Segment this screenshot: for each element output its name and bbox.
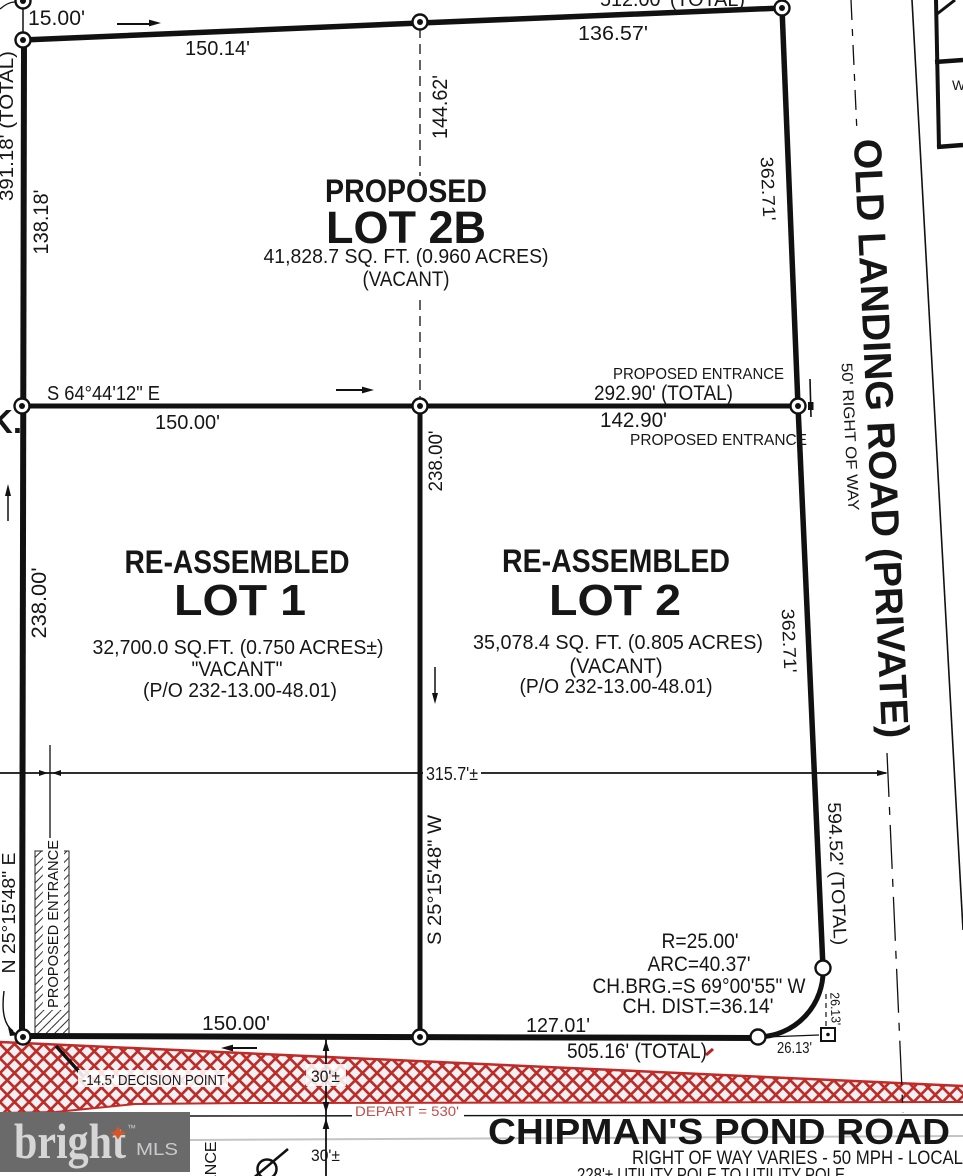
svg-text:127.01': 127.01': [526, 1015, 590, 1037]
svg-text:PROPOSED ENTRANCE: PROPOSED ENTRANCE: [45, 840, 62, 1008]
svg-text:238.00': 238.00': [27, 568, 51, 639]
svg-text:R=25.00': R=25.00': [662, 930, 739, 953]
svg-text:S 64°44'12" E: S 64°44'12" E: [47, 383, 160, 405]
svg-text:144.62': 144.62': [429, 75, 452, 139]
svg-text:bright: bright: [14, 1113, 126, 1169]
svg-text:30'±: 30'±: [311, 1146, 340, 1165]
svg-text:LOT 2: LOT 2: [549, 576, 681, 625]
svg-text:138.18': 138.18': [30, 190, 53, 255]
svg-text:PROPOSED ENTRANCE: PROPOSED ENTRANCE: [613, 366, 784, 383]
svg-text:136.57': 136.57': [578, 23, 648, 45]
svg-text:PROPOSED ENTRANCE: PROPOSED ENTRANCE: [203, 1141, 220, 1176]
svg-text:CHIPMAN'S POND ROAD: CHIPMAN'S POND ROAD: [488, 1111, 950, 1152]
svg-text:W: W: [952, 77, 963, 93]
svg-text:292.90' (TOTAL): 292.90' (TOTAL): [594, 382, 733, 405]
svg-text:150.00': 150.00': [202, 1013, 270, 1035]
svg-text:MLS: MLS: [136, 1139, 178, 1159]
svg-text:362.71': 362.71': [778, 608, 801, 673]
svg-text:512.00' (TOTAL): 512.00' (TOTAL): [600, 0, 745, 11]
svg-text:K.: K.: [0, 403, 22, 440]
svg-text:(VACANT): (VACANT): [570, 655, 663, 678]
svg-text:S 25°15'48" W: S 25°15'48" W: [425, 815, 446, 945]
svg-text:(P/O 232-13.00-48.01): (P/O 232-13.00-48.01): [520, 676, 713, 698]
svg-text:ARC=40.37': ARC=40.37': [648, 953, 751, 976]
svg-text:CH. DIST.=36.14': CH. DIST.=36.14': [623, 995, 774, 1018]
svg-text:228'± UTILITY POLE TO UTILITY: 228'± UTILITY POLE TO UTILITY POLE: [577, 1165, 845, 1176]
svg-text:30'±: 30'±: [311, 1067, 340, 1086]
svg-text:391.18' (TOTAL): 391.18' (TOTAL): [0, 51, 18, 201]
svg-text:-14.5' DECISION POINT: -14.5' DECISION POINT: [82, 1072, 225, 1089]
svg-text:150.00': 150.00': [155, 412, 220, 434]
svg-text:"VACANT": "VACANT": [192, 658, 283, 681]
svg-text:LOT 1: LOT 1: [174, 576, 306, 625]
svg-text:RE-ASSEMBLED: RE-ASSEMBLED: [502, 543, 730, 579]
svg-text:142.90': 142.90': [600, 409, 667, 432]
svg-text:™: ™: [127, 1123, 136, 1133]
svg-text:150.14': 150.14': [185, 38, 250, 60]
svg-text:35,078.4 SQ. FT. (0.805 ACRES): 35,078.4 SQ. FT. (0.805 ACRES): [473, 632, 763, 654]
svg-text:362.71': 362.71': [757, 156, 780, 221]
svg-text:(P/O 232-13.00-48.01): (P/O 232-13.00-48.01): [143, 680, 337, 702]
svg-text:(VACANT): (VACANT): [363, 268, 450, 291]
svg-text:26.13': 26.13': [827, 992, 843, 1026]
svg-text:32,700.0 SQ.FT. (0.750 ACRES±): 32,700.0 SQ.FT. (0.750 ACRES±): [93, 637, 384, 659]
svg-text:238.00': 238.00': [426, 431, 447, 492]
svg-text:315.7'±: 315.7'±: [426, 764, 478, 784]
svg-text:505.16' (TOTAL): 505.16' (TOTAL): [567, 1040, 707, 1063]
svg-text:PROPOSED ENTRANCE: PROPOSED ENTRANCE: [630, 432, 807, 449]
svg-text:26.13': 26.13': [777, 1040, 812, 1057]
svg-text:41,828.7 SQ. FT. (0.960 ACRES): 41,828.7 SQ. FT. (0.960 ACRES): [264, 246, 549, 268]
svg-text:N 25°15'48" E: N 25°15'48" E: [0, 853, 19, 974]
svg-text:15.00': 15.00': [28, 7, 85, 30]
svg-text:DEPART = 530': DEPART = 530': [355, 1103, 459, 1119]
svg-text:RE-ASSEMBLED: RE-ASSEMBLED: [125, 544, 350, 580]
